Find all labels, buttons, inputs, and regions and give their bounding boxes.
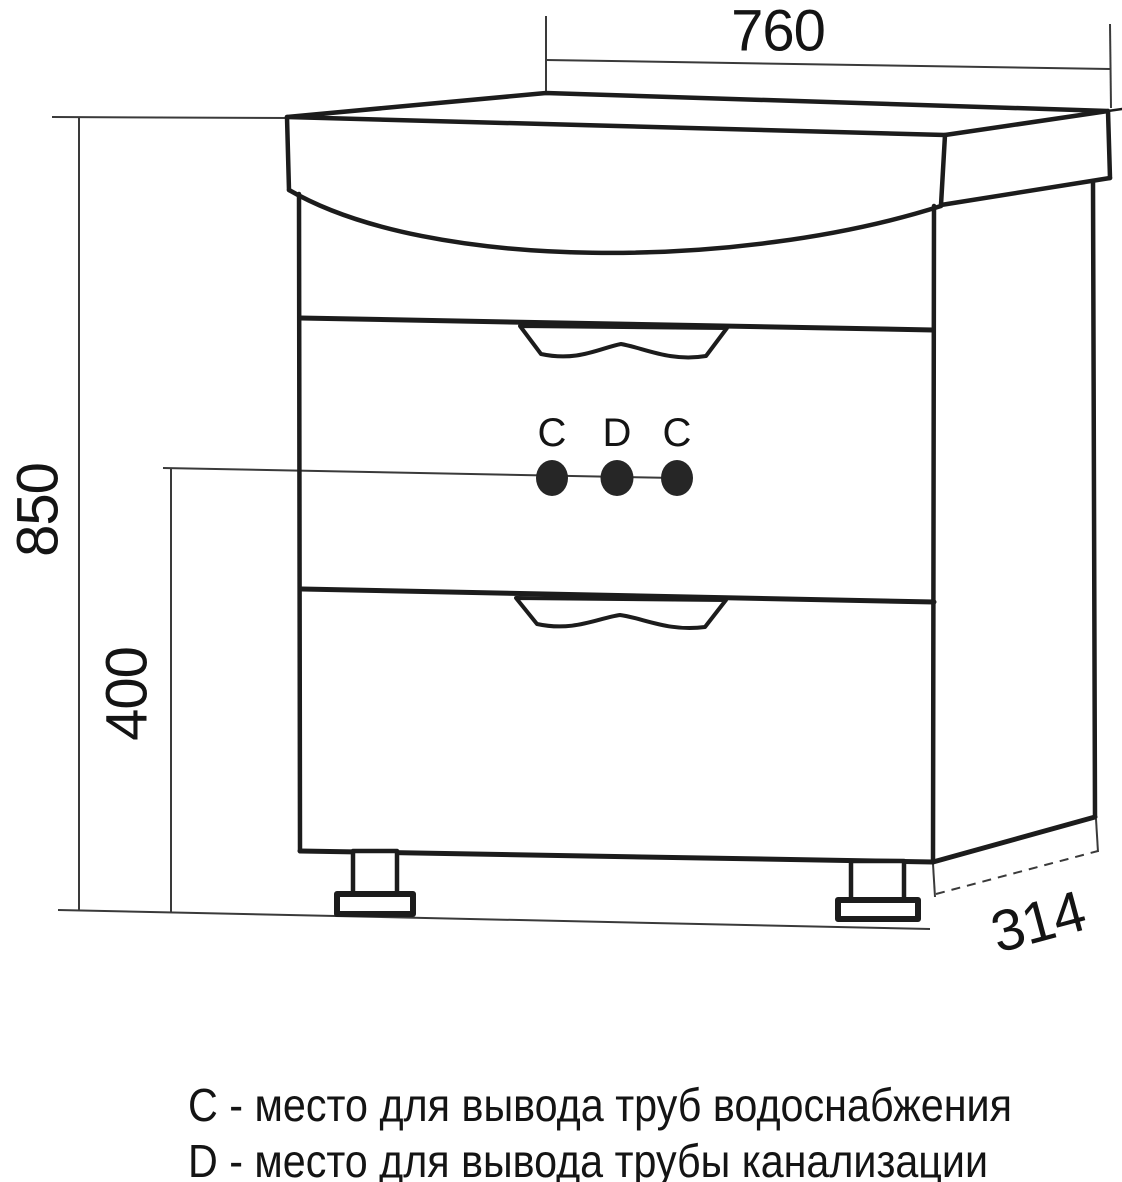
holes-leader-line	[163, 468, 676, 478]
technical-drawing-canvas: C D C 760 850 400 314 C - место для выво…	[0, 0, 1122, 1182]
left-leg-foot	[337, 894, 413, 914]
vanity-dimension-diagram: C D C 760 850 400 314 C - место для выво…	[0, 0, 1122, 1182]
cabinet-left-edge	[299, 194, 300, 851]
pipe-outlet-markers: C D C	[536, 411, 693, 496]
countertop-top-face	[287, 93, 1108, 135]
dim-width-label: 760	[731, 0, 825, 64]
right-leg-stem	[851, 861, 904, 902]
dim-width-line	[546, 60, 1110, 69]
countertop-side-right-edge	[1108, 111, 1110, 178]
left-leg-stem	[353, 851, 397, 895]
drawer-2-handle	[516, 598, 726, 628]
marker-c-right-dot	[661, 460, 693, 496]
ground-line	[58, 910, 930, 929]
cabinet-drawing	[287, 93, 1122, 919]
right-leg-foot	[838, 900, 918, 919]
dim-height-ext-top	[52, 117, 290, 118]
marker-c-right-label: C	[663, 411, 692, 455]
marker-d-dot	[601, 460, 634, 496]
countertop-left-edge	[287, 117, 289, 190]
countertop-front-right-edge	[941, 135, 945, 205]
dim-depth-ext-front	[933, 864, 935, 897]
legend: C - место для вывода труб водоснабжения …	[188, 1079, 1012, 1182]
dim-depth-ext-back	[1096, 819, 1098, 852]
legend-line-1: C - место для вывода труб водоснабжения	[188, 1079, 1012, 1131]
dim-width-ext-right	[1110, 24, 1111, 108]
cabinet-bottom-side-edge	[933, 817, 1095, 862]
dimension-lines	[52, 16, 1111, 929]
dim-depth-label: 314	[984, 878, 1091, 965]
countertop-side-bottom-edge	[941, 178, 1110, 205]
sink-apron-curve	[289, 190, 941, 253]
cabinet-front-right-edge	[933, 206, 934, 862]
cabinet-back-right-edge	[1093, 181, 1095, 817]
marker-c-left-dot	[536, 460, 568, 496]
legend-line-2: D - место для вывода трубы канализации	[188, 1135, 988, 1182]
drawer-1-handle	[520, 326, 727, 357]
dim-holes-height-label: 400	[95, 647, 160, 741]
dim-height-label: 850	[6, 463, 71, 557]
marker-d-label: D	[603, 411, 632, 455]
marker-c-left-label: C	[538, 411, 567, 455]
